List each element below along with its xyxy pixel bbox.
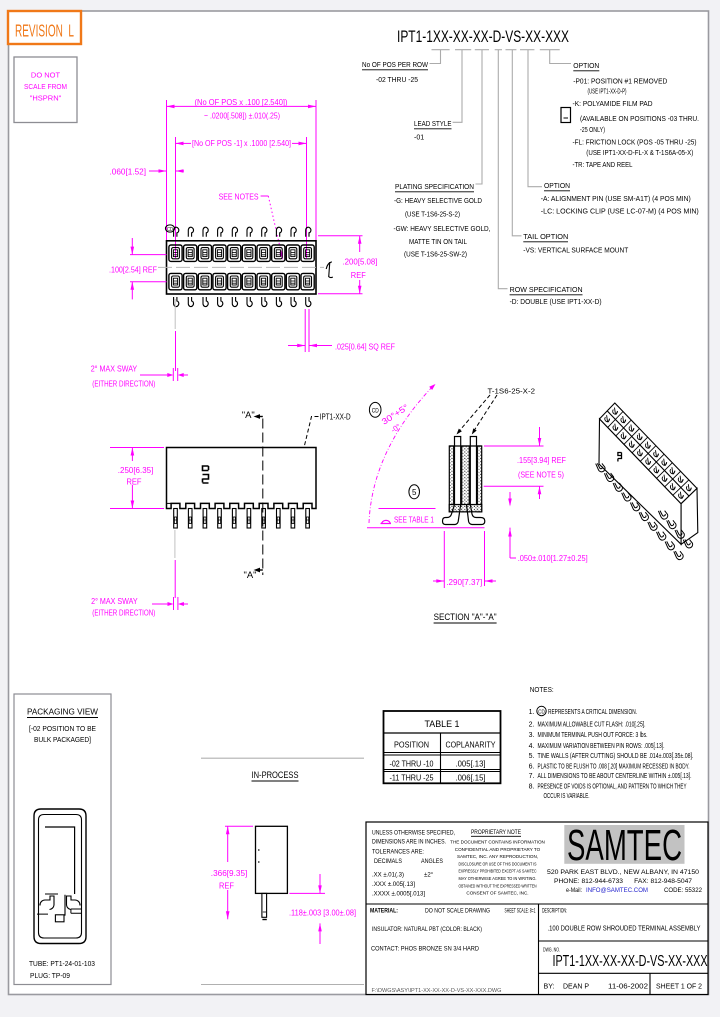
- svg-text:(USE T-1S6-25-S-2): (USE T-1S6-25-S-2): [405, 211, 460, 218]
- svg-text:(SEE NOTE 5): (SEE NOTE 5): [518, 470, 564, 480]
- svg-text:MAXIMUM ALLOWABLE CUT FLASH: .: MAXIMUM ALLOWABLE CUT FLASH: .010[.25].: [538, 722, 646, 729]
- svg-text:PLUG: TP-09: PLUG: TP-09: [30, 971, 70, 980]
- svg-text:SAMTEC: SAMTEC: [567, 821, 682, 870]
- svg-text:ANGLES: ANGLES: [421, 858, 443, 865]
- svg-text:-G: HEAVY SELECTIVE GOLD: -G: HEAVY SELECTIVE GOLD: [394, 198, 482, 205]
- svg-text:-LC: LOCKING CLIP (USE LC-07-M: -LC: LOCKING CLIP (USE LC-07-M) (4 POS M…: [541, 209, 699, 216]
- svg-text:11-06-2002: 11-06-2002: [608, 982, 648, 991]
- svg-text:MAXIMUM VARIATION BETWEEN PIN: MAXIMUM VARIATION BETWEEN PIN ROWS: .005…: [538, 743, 665, 750]
- svg-text:REVISION L: REVISION L: [15, 21, 74, 41]
- svg-text:CONSENT OF SAMTEC, INC.: CONSENT OF SAMTEC, INC.: [466, 891, 528, 896]
- svg-text:"HSPRN": "HSPRN": [30, 94, 62, 103]
- svg-text:ROW SPECIFICATION: ROW SPECIFICATION: [510, 287, 583, 294]
- svg-text:INFO@SAMTEC.COM: INFO@SAMTEC.COM: [586, 888, 648, 894]
- svg-text:4.: 4.: [529, 743, 535, 750]
- svg-text:IPT1-1XX-XX-XX-D-VS-XX-XXX: IPT1-1XX-XX-XX-D-VS-XX-XXX: [553, 953, 708, 970]
- svg-text:REF: REF: [127, 477, 142, 487]
- svg-text:REF: REF: [351, 270, 366, 280]
- svg-text:.118±.003 [3.00±.08]: .118±.003 [3.00±.08]: [289, 908, 356, 918]
- svg-text:.XX ±.01(.3): .XX ±.01(.3): [372, 872, 404, 879]
- svg-text:SHEET SCALE: 8=1: SHEET SCALE: 8=1: [505, 908, 536, 915]
- svg-text:-FL: FRICTION LOCK (POS -05 TH: -FL: FRICTION LOCK (POS -05 THRU -25): [573, 140, 697, 147]
- svg-text:.100 DOUBLE ROW SHROUDED TERMI: .100 DOUBLE ROW SHROUDED TERMINAL ASSEMB…: [548, 926, 701, 933]
- svg-text:TINE WALLS (AFTER CUTTING) SHO: TINE WALLS (AFTER CUTTING) SHOULD BE .01…: [538, 753, 694, 760]
- svg-text:BY:: BY:: [544, 982, 555, 991]
- svg-text:.250[6.35]: .250[6.35]: [118, 465, 154, 475]
- svg-text:CONTACT: PHOS BRONZE SN 3/4 HA: CONTACT: PHOS BRONZE SN 3/4 HARD: [371, 946, 479, 953]
- svg-text:.005[.13]: .005[.13]: [456, 760, 486, 769]
- svg-text:.366[9.35]: .366[9.35]: [211, 868, 248, 878]
- svg-text:LEAD STYLE: LEAD STYLE: [414, 121, 452, 128]
- svg-text:OPTION: OPTION: [544, 183, 570, 190]
- svg-text:-GW: HEAVY SELECTIVE GOLD,: -GW: HEAVY SELECTIVE GOLD,: [394, 226, 491, 233]
- svg-text:.XXXX ±.0005[.013]: .XXXX ±.0005[.013]: [372, 891, 425, 898]
- svg-text:.060[1.52]: .060[1.52]: [110, 167, 147, 177]
- svg-text:SCALE FROM: SCALE FROM: [24, 82, 67, 91]
- svg-text:CONFIDENTIAL AND PROPRIETARY T: CONFIDENTIAL AND PROPRIETARY TO: [455, 847, 541, 852]
- svg-text:POSITION: POSITION: [394, 741, 429, 750]
- svg-text:.290[7.37]: .290[7.37]: [446, 577, 482, 587]
- svg-text:.025[0.64] SQ REF: .025[0.64] SQ REF: [335, 342, 395, 352]
- svg-text:PLATING SPECIFICATION: PLATING SPECIFICATION: [395, 184, 474, 191]
- svg-text:-K: POLYAMIDE FILM PAD: -K: POLYAMIDE FILM PAD: [573, 101, 653, 108]
- svg-text:DO NOT: DO NOT: [31, 71, 61, 80]
- svg-text:.006[.15]: .006[.15]: [456, 774, 486, 783]
- svg-text:.100[2.54] REF: .100[2.54] REF: [109, 265, 157, 275]
- svg-text:SEE TABLE 1: SEE TABLE 1: [394, 516, 434, 525]
- svg-text:-01: -01: [414, 135, 424, 142]
- svg-text:TUBE: PT1-24-01-103: TUBE: PT1-24-01-103: [29, 959, 95, 968]
- svg-text:SEE NOTES: SEE NOTES: [219, 192, 259, 202]
- svg-text:DIMENSIONS ARE IN INCHES.: DIMENSIONS ARE IN INCHES.: [372, 839, 446, 846]
- svg-text:-11 THRU -25: -11 THRU -25: [390, 774, 434, 783]
- svg-text:7.: 7.: [529, 773, 535, 780]
- svg-text:ALL DIMENSIONS TO BE ABOUT CEN: ALL DIMENSIONS TO BE ABOUT CENTERLINE WI…: [538, 773, 692, 780]
- svg-text:MATERIAL:: MATERIAL:: [370, 908, 398, 915]
- svg-text:1.: 1.: [529, 709, 535, 716]
- svg-text:5: 5: [412, 488, 417, 497]
- svg-text:NOTES:: NOTES:: [530, 687, 554, 694]
- svg-text:DEAN P: DEAN P: [563, 982, 589, 991]
- svg-text:(USE T-1S6-25-SW-2): (USE T-1S6-25-SW-2): [404, 252, 467, 259]
- svg-text:PRESENCE OF VOIDS IS OPTIONAL,: PRESENCE OF VOIDS IS OPTIONAL, AND PATTE…: [538, 783, 687, 790]
- svg-text:CD: CD: [167, 227, 173, 233]
- svg-text:No OF POS PER ROW: No OF POS PER ROW: [362, 62, 428, 69]
- svg-text:CD: CD: [372, 409, 380, 415]
- svg-text:PHONE: 812-944-6733 FAX:: PHONE: 812-944-6733 FAX: 812-948-5047: [554, 879, 693, 885]
- svg-text:SAMTEC, INC. ANY REPRODUCTION,: SAMTEC, INC. ANY REPRODUCTION,: [457, 854, 538, 859]
- svg-text:[-02 POSITION TO BE: [-02 POSITION TO BE: [29, 726, 96, 733]
- svg-text:TABLE 1: TABLE 1: [425, 719, 460, 730]
- svg-text:e-Mail:: e-Mail:: [566, 888, 582, 894]
- svg-text:SECTION "A"-"A": SECTION "A"-"A": [434, 612, 497, 622]
- svg-text:OCCUR IS VARIABLE.: OCCUR IS VARIABLE.: [544, 793, 590, 800]
- svg-text:[No OF POS -1] x .1000 [2.540]: [No OF POS -1] x .1000 [2.540]: [192, 138, 291, 148]
- svg-text:IPT1-1XX-XX-XX-D-VS-XX-XXX: IPT1-1XX-XX-XX-D-VS-XX-XXX: [397, 28, 569, 46]
- svg-text:EXPRESSLY PROHIBITED EXCEPT AS: EXPRESSLY PROHIBITED EXCEPT AS SAMTEC: [459, 869, 538, 874]
- svg-text:OBTAINED WITHOUT THE EXPRESSED: OBTAINED WITHOUT THE EXPRESSED WRITTEN: [459, 883, 537, 888]
- svg-text:(AVAILABLE ON POSITIONS -03 TH: (AVAILABLE ON POSITIONS -03 THRU.: [580, 116, 699, 123]
- svg-text:DECIMALS: DECIMALS: [374, 858, 402, 865]
- svg-text:(EITHER DIRECTION): (EITHER DIRECTION): [92, 379, 155, 389]
- svg-text:SHEET 1 OF 2: SHEET 1 OF 2: [656, 982, 702, 991]
- svg-text:.155[3.94] REF: .155[3.94] REF: [517, 455, 566, 465]
- svg-text:T-1S6-25-X-2: T-1S6-25-X-2: [488, 387, 536, 396]
- svg-text:-02 THRU -10: -02 THRU -10: [390, 760, 434, 769]
- svg-text:520 PARK EAST BLVD., NEW ALBAN: 520 PARK EAST BLVD., NEW ALBANY, IN 4715…: [547, 870, 700, 876]
- svg-text:-D: DOUBLE (USE IPT1-XX-D): -D: DOUBLE (USE IPT1-XX-D): [510, 299, 602, 306]
- svg-text:-P01: POSITION #1 REMOVED: -P01: POSITION #1 REMOVED: [573, 79, 667, 86]
- svg-text:OPTION: OPTION: [573, 63, 599, 70]
- svg-text:DISCLOSURE OR USE OF THIS DOCU: DISCLOSURE OR USE OF THIS DOCUMENT IS: [459, 861, 537, 866]
- svg-text:3.: 3.: [529, 732, 535, 739]
- svg-text:COPLANARITY: COPLANARITY: [446, 741, 497, 750]
- svg-text:MAY OTHERWISE AGREE TO IN WRIT: MAY OTHERWISE AGREE TO IN WRITING.: [459, 876, 537, 881]
- svg-text:INSULATOR: NATURAL PBT (COLOR:: INSULATOR: NATURAL PBT (COLOR: BLACK): [372, 926, 482, 933]
- svg-text:TAIL OPTION: TAIL OPTION: [523, 234, 568, 241]
- svg-text:F:\DWGS\ASY\IPT1-XX-XX-XX-D-VS: F:\DWGS\ASY\IPT1-XX-XX-XX-D-VS-XX-XXX.DW…: [372, 988, 502, 994]
- svg-text:8.: 8.: [529, 783, 535, 790]
- svg-text:REF: REF: [219, 881, 234, 891]
- svg-text:(USE IPT1-XX-D-FL-X & T-1S6A-0: (USE IPT1-XX-D-FL-X & T-1S6A-05-X): [586, 150, 693, 157]
- svg-text:TOLERANCES ARE:: TOLERANCES ARE:: [372, 849, 424, 856]
- svg-text:.200[5.08]: .200[5.08]: [343, 257, 378, 267]
- svg-text:− .0200[.508]) ±.010(.25): − .0200[.508]) ±.010(.25): [204, 111, 280, 121]
- svg-text:(EITHER DIRECTION): (EITHER DIRECTION): [92, 608, 155, 618]
- svg-text:BULK PACKAGED]: BULK PACKAGED]: [34, 737, 91, 744]
- svg-text:±2°: ±2°: [424, 872, 434, 879]
- svg-text:-VS: VERTICAL SURFACE MOUNT: -VS: VERTICAL SURFACE MOUNT: [523, 247, 629, 254]
- svg-text:MINIMUM TERMINAL PUSH OUT FORC: MINIMUM TERMINAL PUSH OUT FORCE: 3 lbs.: [538, 732, 648, 739]
- svg-text:2° MAX SWAY: 2° MAX SWAY: [91, 596, 138, 606]
- svg-text:PLASTIC TO BE FLUSH TO .008 [.: PLASTIC TO BE FLUSH TO .008 [.20] MAXIMU…: [538, 763, 690, 770]
- svg-text:DESCRIPTION:: DESCRIPTION:: [542, 908, 567, 915]
- svg-text:CD: CD: [538, 709, 545, 715]
- svg-text:-TR: TAPE AND REEL: -TR: TAPE AND REEL: [573, 162, 633, 169]
- svg-text:(No OF POS x .100 [2.540]): (No OF POS x .100 [2.540]): [195, 97, 288, 107]
- svg-text:5.: 5.: [529, 753, 535, 760]
- svg-text:REPRESENTS A CRITICAL DIMENSIO: REPRESENTS A CRITICAL DIMENSION.: [548, 709, 637, 716]
- svg-text:"A": "A": [242, 410, 255, 420]
- svg-text:-A: ALIGNMENT PIN (USE SM-A1T): -A: ALIGNMENT PIN (USE SM-A1T) (4 POS MI…: [541, 196, 691, 203]
- svg-text:(USE IPT1-XX-D-P): (USE IPT1-XX-D-P): [588, 89, 627, 96]
- svg-text:"A": "A": [244, 570, 257, 580]
- svg-text:DO NOT SCALE DRAWING: DO NOT SCALE DRAWING: [425, 908, 490, 915]
- svg-text:MATTE TIN ON TAIL: MATTE TIN ON TAIL: [409, 239, 467, 246]
- svg-text:PACKAGING VIEW: PACKAGING VIEW: [27, 707, 98, 717]
- svg-text:PROPRIETARY NOTE: PROPRIETARY NOTE: [471, 829, 521, 836]
- svg-text:THE DOCUMENT CONTAINS INFORMAT: THE DOCUMENT CONTAINS INFORMATION: [450, 840, 545, 845]
- svg-text:IN-PROCESS: IN-PROCESS: [252, 770, 299, 780]
- svg-text:6.: 6.: [529, 763, 535, 770]
- svg-text:-25 ONLY): -25 ONLY): [580, 127, 605, 134]
- svg-text:2° MAX SWAY: 2° MAX SWAY: [91, 364, 138, 374]
- svg-text:-02 THRU -25: -02 THRU -25: [376, 77, 418, 84]
- svg-text:.XXX ±.005[.13]: .XXX ±.005[.13]: [372, 881, 415, 888]
- svg-text:IPT1-XX-D: IPT1-XX-D: [320, 413, 351, 422]
- svg-text:.050±.010[1.27±0.25]: .050±.010[1.27±0.25]: [518, 553, 588, 563]
- svg-text:2.: 2.: [529, 722, 535, 729]
- svg-text:CODE: 55322: CODE: 55322: [664, 888, 703, 894]
- svg-text:UNLESS OTHERWISE SPECIFIED,: UNLESS OTHERWISE SPECIFIED,: [372, 830, 455, 837]
